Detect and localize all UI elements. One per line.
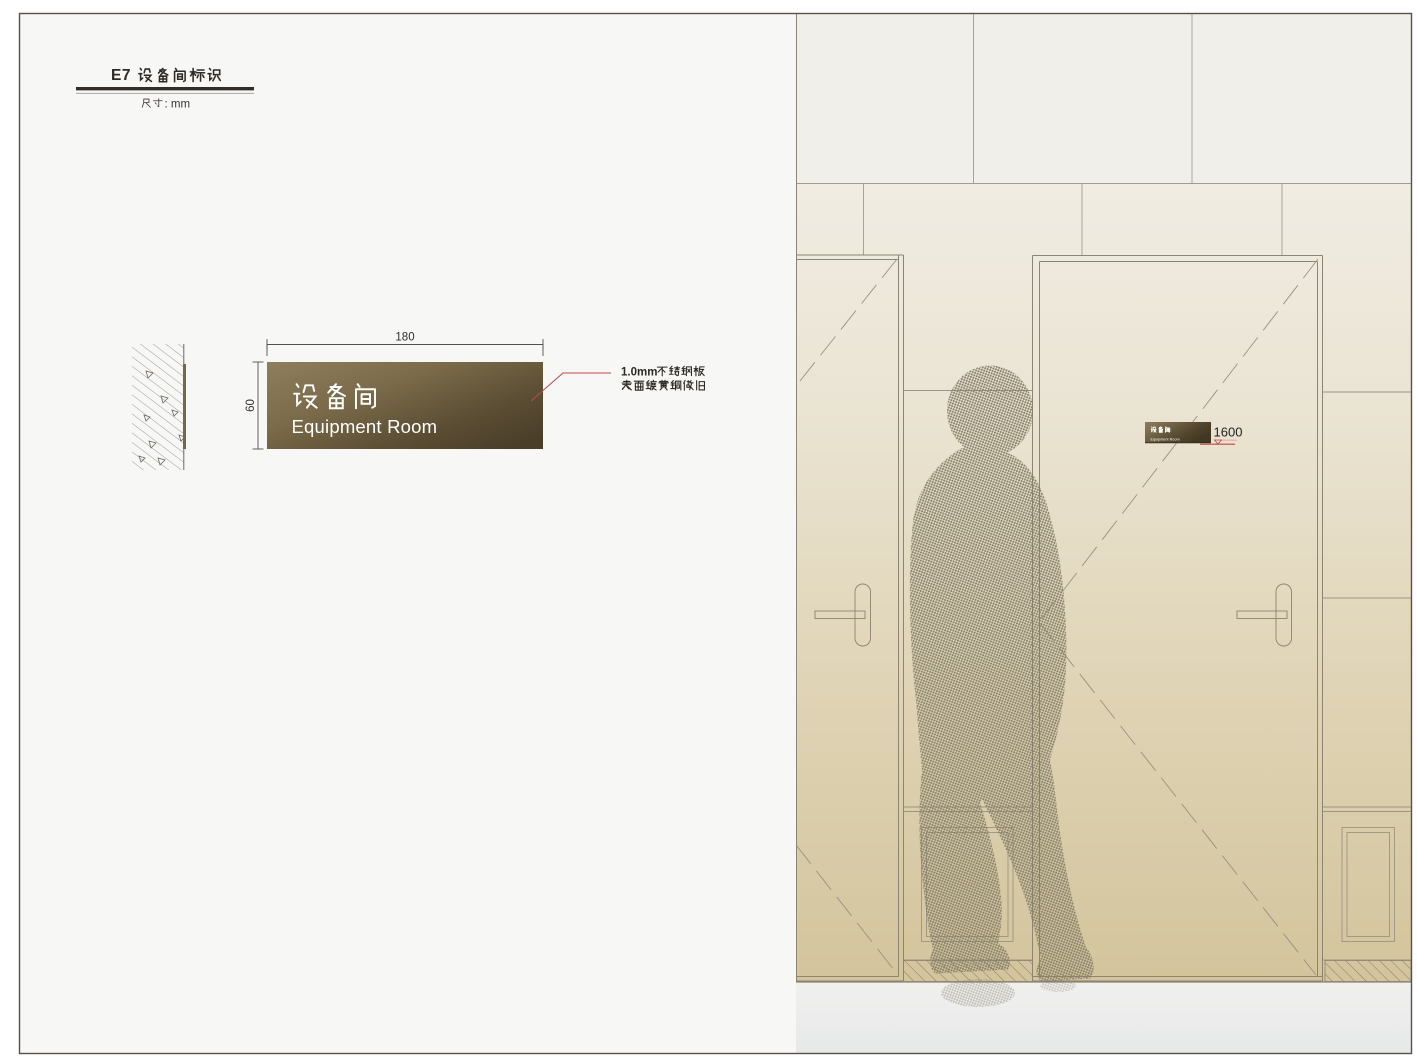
svg-text:180: 180 xyxy=(395,332,414,344)
svg-text:Equipment Room: Equipment Room xyxy=(1151,438,1180,442)
svg-text:: mm: : mm xyxy=(165,99,191,111)
svg-text:Equipment Room: Equipment Room xyxy=(292,416,438,437)
svg-text:1.0mm: 1.0mm xyxy=(621,367,657,379)
svg-text:60: 60 xyxy=(245,399,257,412)
svg-text:E7: E7 xyxy=(111,67,131,84)
svg-text:1600: 1600 xyxy=(1214,425,1243,440)
